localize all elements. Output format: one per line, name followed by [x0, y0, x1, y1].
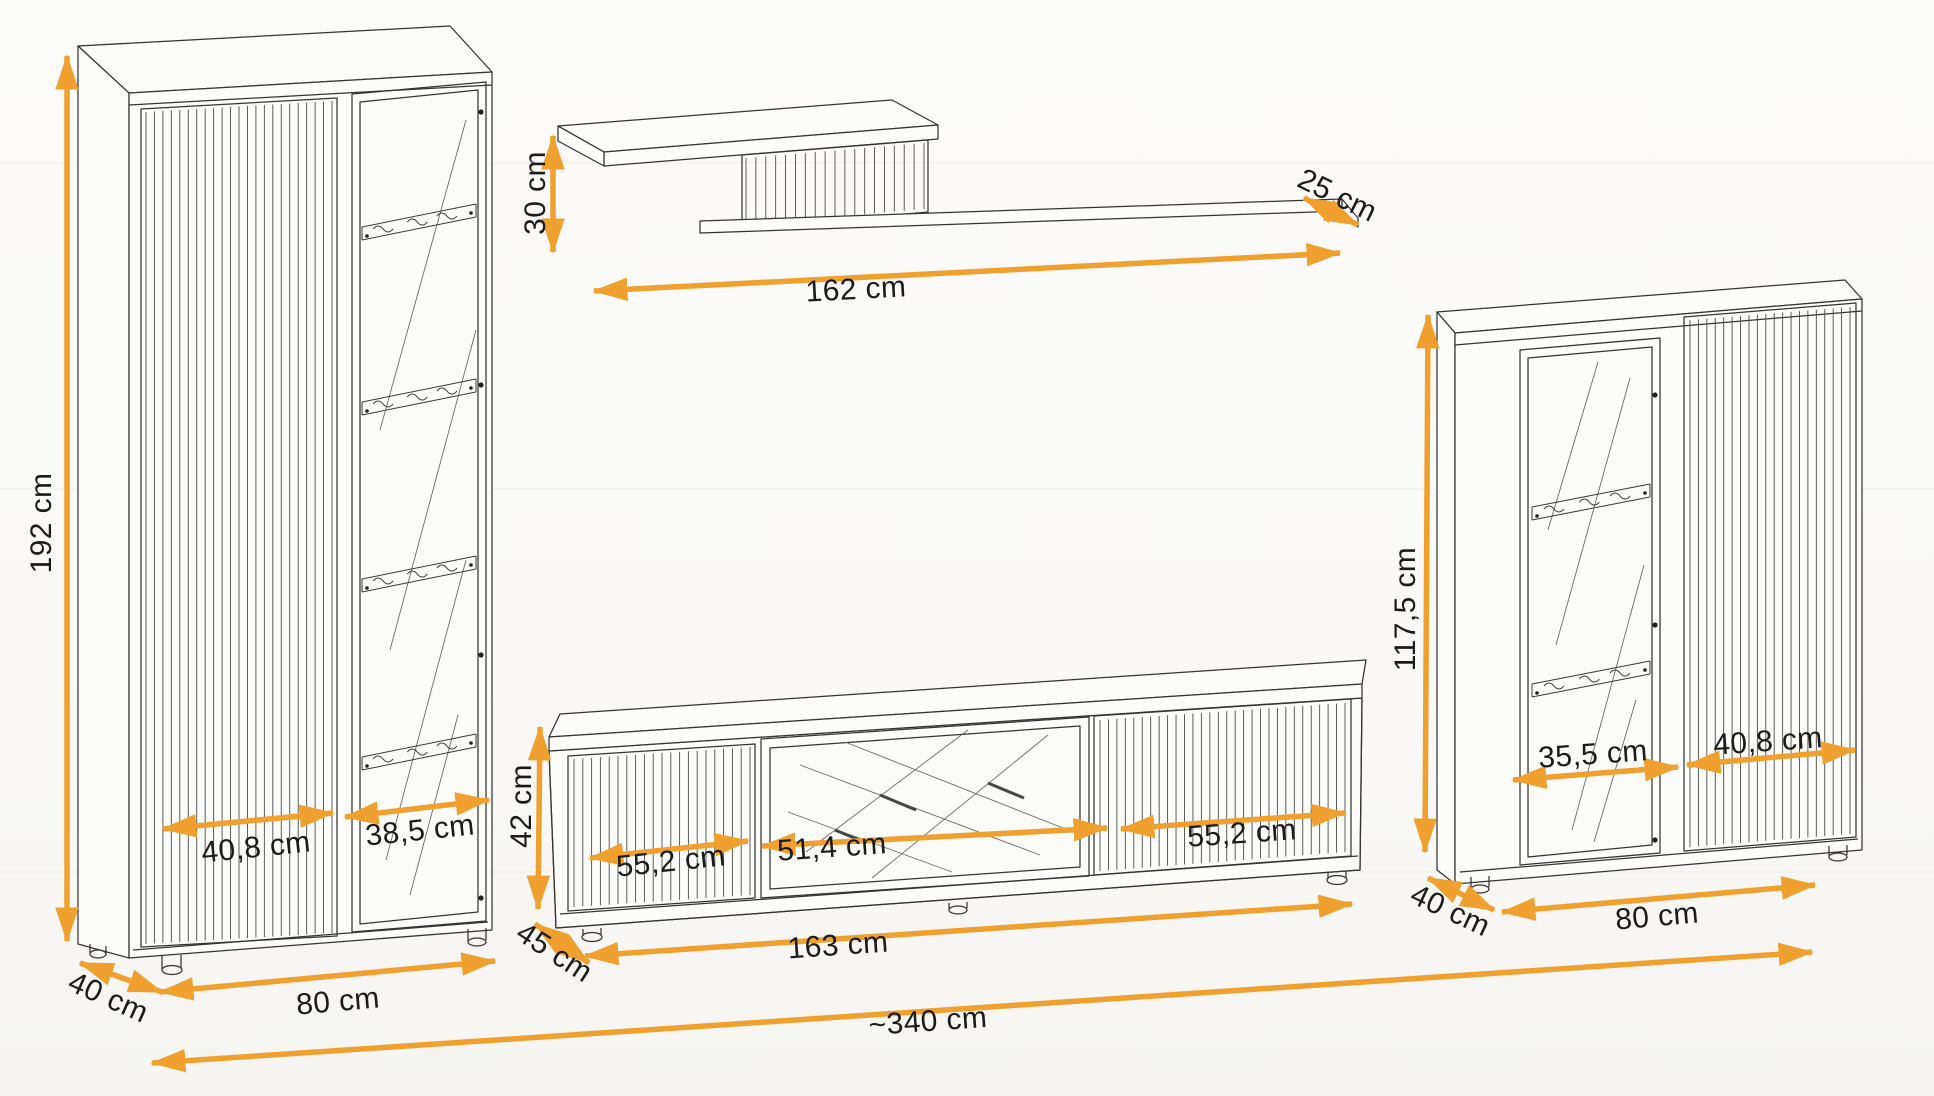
dim-label-tv-stand-height: 42 cm [505, 764, 539, 848]
tv-stand-drawing [549, 660, 1366, 942]
dim-label-tv-stand-width: 163 cm [787, 926, 890, 967]
low-cabinet-drawing [1437, 280, 1862, 893]
dim-label-tall-cabinet-width: 80 cm [295, 981, 381, 1022]
dim-label-wall-shelf-height: 30 cm [519, 151, 553, 235]
dim-label-wall-shelf-width: 162 cm [805, 270, 907, 309]
dim-label-low-cabinet-height: 117,5 cm [1389, 547, 1423, 671]
dim-label-tall-cabinet-height: 192 cm [25, 473, 59, 574]
dim-arrow-low-cabinet-height [1425, 315, 1428, 852]
dim-arrow-wall-shelf-width [594, 253, 1340, 291]
furniture-dimension-diagram: 192 cm 40,8 cm 38,5 cm 40 cm 80 cm 30 cm… [0, 0, 1934, 1096]
fluted-door-panel [574, 747, 750, 907]
wall-shelf-drawing [558, 100, 1358, 233]
dim-label-low-cabinet-width: 80 cm [1614, 896, 1700, 937]
fluted-shelf-panel [746, 143, 924, 225]
